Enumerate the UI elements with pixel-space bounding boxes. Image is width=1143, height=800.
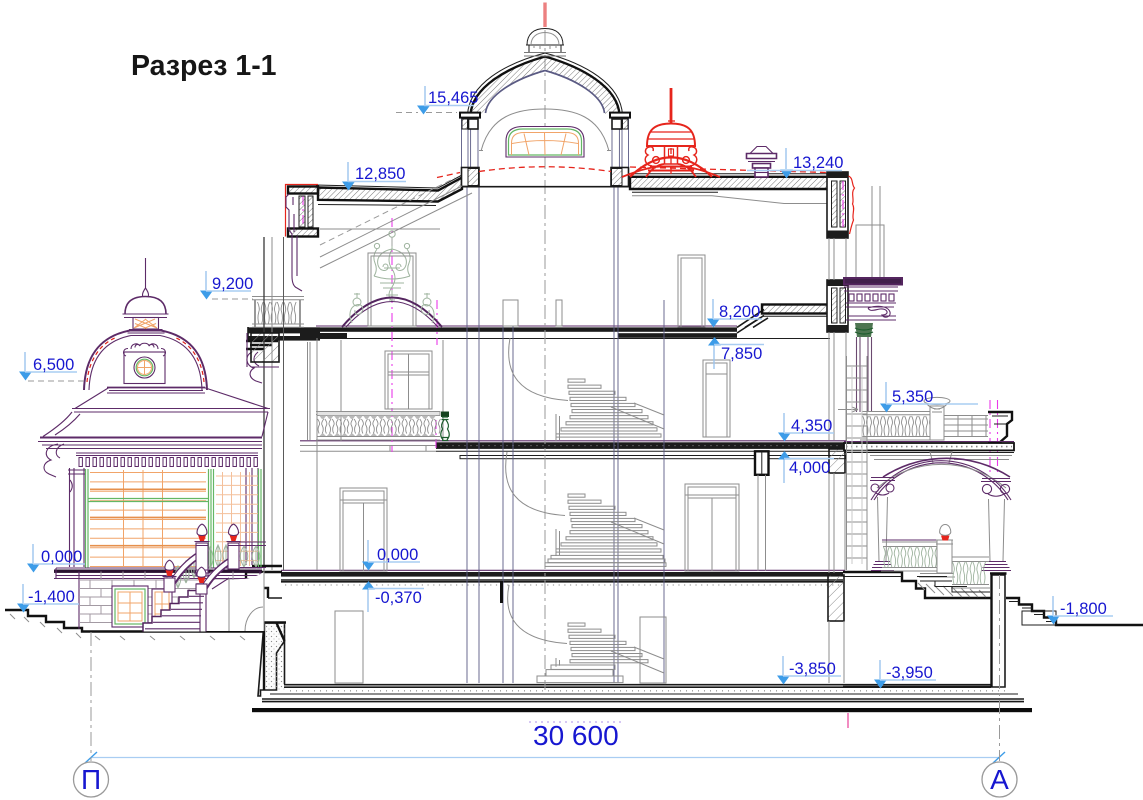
svg-text:7,850: 7,850 — [721, 345, 762, 363]
svg-text:6,500: 6,500 — [33, 356, 74, 374]
svg-text:-0,370: -0,370 — [375, 589, 422, 607]
svg-text:0,000: 0,000 — [41, 548, 82, 566]
svg-text:-1,800: -1,800 — [1060, 600, 1107, 618]
svg-text:0,000: 0,000 — [377, 546, 418, 564]
svg-text:9,200: 9,200 — [212, 275, 253, 293]
svg-text:12,850: 12,850 — [355, 165, 405, 183]
svg-text:-3,950: -3,950 — [886, 664, 933, 682]
svg-text:13,240: 13,240 — [793, 154, 843, 172]
svg-text:5,350: 5,350 — [892, 388, 933, 406]
svg-text:15,465: 15,465 — [428, 89, 478, 107]
svg-text:30 600: 30 600 — [533, 720, 619, 751]
svg-text:-1,400: -1,400 — [28, 588, 75, 606]
svg-text:4,000: 4,000 — [789, 459, 830, 477]
svg-text:П: П — [81, 764, 101, 795]
svg-text:8,200: 8,200 — [719, 303, 760, 321]
svg-text:А: А — [990, 764, 1009, 795]
svg-text:Разрез 1-1: Разрез 1-1 — [131, 50, 277, 82]
svg-text:-3,850: -3,850 — [789, 660, 836, 678]
svg-text:4,350: 4,350 — [791, 417, 832, 435]
